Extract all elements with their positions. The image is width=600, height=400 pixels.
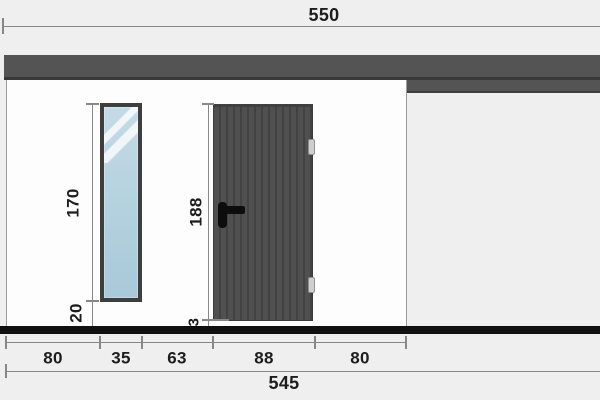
roof-band-right-lower <box>406 80 600 93</box>
dim-tick-window-bottom <box>86 300 99 302</box>
dim-tick-seg-1 <box>99 336 101 349</box>
dim-tick-seg-2 <box>141 336 143 349</box>
dim-line-bottom-total <box>6 371 600 372</box>
glass-reflection-icon <box>104 107 138 163</box>
dim-label-door-height: 188 <box>188 197 205 226</box>
dim-line-bottom-segments <box>6 342 406 343</box>
ground-line <box>0 326 600 334</box>
elevation-drawing: 550 170 20 188 3 80 35 63 88 80 545 <box>0 0 600 400</box>
door-handle-lever-icon <box>224 206 245 214</box>
dim-label-door-gap: 3 <box>187 318 202 327</box>
dim-label-window-sill: 20 <box>68 303 85 323</box>
dim-tick-bottom-left <box>5 364 7 378</box>
dim-line-top-total <box>3 26 600 27</box>
dim-label-segment-2: 35 <box>111 350 131 367</box>
dim-label-segment-4: 88 <box>254 350 274 367</box>
dim-tick-seg-5 <box>405 336 407 349</box>
dim-label-segment-3: 63 <box>167 350 187 367</box>
dim-tick-door-top <box>202 103 214 105</box>
dim-label-bottom-total: 545 <box>269 374 300 392</box>
roof-band <box>4 55 600 80</box>
dim-tick-seg-4 <box>314 336 316 349</box>
door-hinge-bottom-icon <box>308 277 315 293</box>
plank-door <box>213 104 313 321</box>
dim-tick-seg-0 <box>5 336 7 349</box>
dim-label-top-total: 550 <box>309 6 340 24</box>
window-glass <box>104 107 138 298</box>
dim-tick-window-top <box>86 103 99 105</box>
dim-label-window-height: 170 <box>65 188 82 217</box>
dim-tick-door-bottom <box>202 319 229 321</box>
dim-line-door-vertical <box>208 104 209 326</box>
tall-window <box>100 103 142 302</box>
door-hinge-top-icon <box>308 139 315 155</box>
dim-label-segment-5: 80 <box>350 350 370 367</box>
dim-line-window-vertical <box>92 104 93 326</box>
dim-label-segment-1: 80 <box>43 350 63 367</box>
dim-tick-top-left <box>2 18 4 34</box>
dim-tick-seg-3 <box>212 336 214 349</box>
